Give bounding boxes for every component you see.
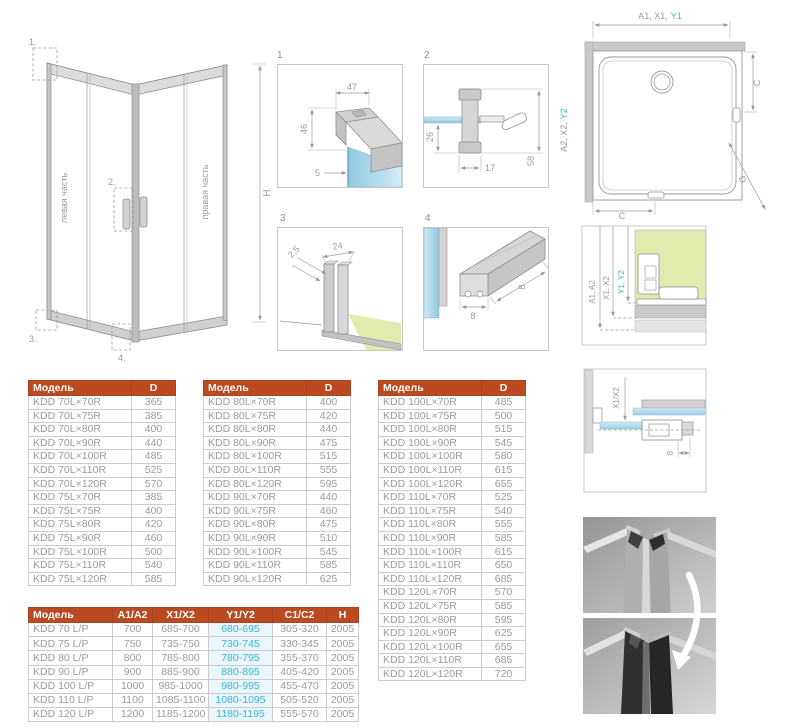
handle-right (140, 197, 147, 227)
side-dim-label: A2, X2,Y2 (560, 108, 569, 152)
table-row: KDD 100L×100R580 (379, 450, 526, 464)
table-row: KDD 100L×75R500 (379, 409, 526, 423)
detail-box-3: 24 2,5 (277, 227, 403, 351)
table-cell: 2005 (327, 679, 359, 693)
wall-profile-left (47, 63, 51, 320)
table-row: KDD 75L×110R540 (29, 559, 176, 573)
table-cell: 880-895 (209, 665, 273, 679)
model-dimension-table-3: МодельDKDD 100L×70R485KDD 100L×75R500KDD… (378, 380, 526, 681)
dim-46-label: 46 (299, 124, 309, 134)
table-cell: KDD 75L×110R (29, 559, 132, 573)
seal-photos (583, 517, 716, 719)
table-row: KDD 75L×90R460 (29, 531, 176, 545)
table-cell: 1085-1100 (153, 693, 209, 707)
interlock-knob (682, 422, 693, 435)
table-cell: 625 (307, 572, 351, 586)
table-cell: 615 (482, 545, 526, 559)
table-row: KDD 70L×75R385 (29, 409, 176, 423)
table-cell: 545 (307, 545, 351, 559)
table-cell: 400 (307, 396, 351, 410)
door-profile-arm (480, 116, 504, 122)
table-row: KDD 110L×100R615 (379, 545, 526, 559)
table-cell: KDD 100L×90R (379, 436, 482, 450)
table-row: KDD 120L×80R595 (379, 613, 526, 627)
table-cell: 555 (482, 518, 526, 532)
column-header: Модель (379, 381, 482, 396)
table-cell: KDD 110L×75R (379, 504, 482, 518)
table-cell: KDD 80L×75R (204, 409, 307, 423)
table-cell: 585 (482, 531, 526, 545)
table-row: KDD 110L×110R650 (379, 559, 526, 573)
profile-base-plate (637, 299, 706, 305)
table-row: KDD 80L×100R515 (204, 450, 351, 464)
dim-58-label: 58 (526, 156, 536, 166)
table-cell: 2005 (327, 623, 359, 637)
table-cell: KDD 90L×100R (204, 545, 307, 559)
table-header-row: МодельA1/A2X1/X2Y1/Y2C1/C2H (29, 608, 359, 623)
table-cell: KDD 70L×70R (29, 396, 132, 410)
table-row: KDD 120L×70R570 (379, 586, 526, 600)
table-row: KDD 100 L/P1000985-1000980-995455-470200… (29, 679, 359, 693)
ext-line (543, 262, 548, 268)
table-cell: 400 (132, 423, 176, 437)
guide-plate-left (324, 264, 334, 332)
table-row: KDD 110L×120R685 (379, 572, 526, 586)
table-cell: 680-695 (209, 623, 273, 637)
table-cell: KDD 75L×90R (29, 531, 132, 545)
table-row: KDD 110L×70R525 (379, 491, 526, 505)
table-row: KDD 80L×120R595 (204, 477, 351, 491)
table-cell: 625 (482, 627, 526, 641)
table-row: KDD 120L×120R720 (379, 667, 526, 681)
table-cell: 1185-1200 (153, 708, 209, 722)
door-stop-bottom (648, 192, 664, 198)
ext-line (490, 297, 496, 304)
table-header-row: МодельD (204, 381, 351, 396)
table-cell: 580 (482, 450, 526, 464)
column-header: D (132, 381, 176, 396)
wall-profile-arm (659, 287, 698, 299)
table-row: KDD 120 L/P12001185-12001180-1195555-570… (29, 708, 359, 722)
dim-26-label: 26 (425, 132, 435, 142)
column-header: D (482, 381, 526, 396)
table-cell: KDD 100L×75R (379, 409, 482, 423)
table-cell: 1200 (113, 708, 153, 722)
table-row: KDD 100L×120R655 (379, 477, 526, 491)
dim-line-24 (323, 252, 353, 257)
table-cell: KDD 70L×100R (29, 450, 132, 464)
table-cell: 780-795 (209, 651, 273, 665)
table-header-row: МодельD (29, 381, 176, 396)
table-cell: 365 (132, 396, 176, 410)
callout-label-1: 1. (29, 37, 37, 47)
table-cell: KDD 70L×80R (29, 423, 132, 437)
table-cell: KDD 90L×80R (204, 518, 307, 532)
glass-edge-profile (439, 228, 447, 306)
table-cell: KDD 100L×120R (379, 477, 482, 491)
table-cell: 400 (132, 504, 176, 518)
table-cell: 2005 (327, 693, 359, 707)
detail-3-number: 3 (280, 213, 286, 224)
table-cell: 685 (482, 572, 526, 586)
table-cell: KDD 120L×100R (379, 640, 482, 654)
table-cell: 700 (113, 623, 153, 637)
table-row: KDD 90L×100R545 (204, 545, 351, 559)
table-cell: 500 (132, 545, 176, 559)
table-cell: 385 (132, 491, 176, 505)
c-bottom-label: C (619, 211, 626, 220)
table-cell: KDD 75L×70R (29, 491, 132, 505)
table-cell: 525 (132, 463, 176, 477)
table-cell: KDD 100L×80R (379, 423, 482, 437)
table-cell: 570 (132, 477, 176, 491)
table-row: KDD 75L×75R400 (29, 504, 176, 518)
callout-label-3: 3. (29, 334, 37, 344)
table-row: KDD 120L×110R685 (379, 654, 526, 668)
column-header: H (327, 608, 359, 623)
dim-line-gap-2 (298, 258, 326, 274)
table-cell: KDD 75L×100R (29, 545, 132, 559)
dim-8-height-label: 8 (517, 284, 527, 289)
handle-cap-top (459, 89, 481, 100)
detail-box-1: 47 46 5 (277, 64, 403, 188)
table-cell: 330-345 (273, 637, 327, 651)
table-cell: 585 (307, 559, 351, 573)
model-dimension-table-1: МодельDKDD 70L×70R365KDD 70L×75R385KDD 7… (28, 380, 176, 586)
table-row: KDD 70L×100R485 (29, 450, 176, 464)
side-dim-gray: A2, X2, (560, 122, 569, 152)
table-cell: 2005 (327, 651, 359, 665)
table-cell: 540 (132, 559, 176, 573)
left-panel-label: левая часть (59, 173, 69, 224)
table-cell: KDD 70L×90R (29, 436, 132, 450)
table-cell: 440 (307, 491, 351, 505)
table-row: KDD 75L×120R585 (29, 572, 176, 586)
table-row: KDD 110L×90R585 (379, 531, 526, 545)
table-cell: 720 (482, 667, 526, 681)
table-cell: KDD 120L×70R (379, 586, 482, 600)
column-header: X1/X2 (153, 608, 209, 623)
table-row: KDD 110L×75R540 (379, 504, 526, 518)
table-cell: 500 (482, 409, 526, 423)
table-cell: 420 (132, 518, 176, 532)
top-dim-cyan: Y1 (671, 11, 682, 21)
table-cell: 2005 (327, 708, 359, 722)
table-cell: KDD 75L×120R (29, 572, 132, 586)
table-cell: KDD 80L×70R (204, 396, 307, 410)
table-row: KDD 80L×70R400 (204, 396, 351, 410)
height-dim-label: H (262, 189, 273, 196)
dim-47-label: 47 (347, 82, 357, 92)
column-header: Y1/Y2 (209, 608, 273, 623)
dim-line-gap-1 (292, 265, 320, 281)
floor-strip-dark (635, 305, 706, 318)
table-cell: 570 (482, 586, 526, 600)
table-cell: KDD 90L×90R (204, 531, 307, 545)
table-cell: 585 (132, 572, 176, 586)
dim-a-label: A1, A2 (588, 280, 597, 304)
table-cell: 750 (113, 637, 153, 651)
table-row: KDD 110 L/P11001085-11001080-1095505-520… (29, 693, 359, 707)
table-row: KDD 120L×75R585 (379, 599, 526, 613)
table-row: KDD 75L×100R500 (29, 545, 176, 559)
x1x2-label: X1/X2 (612, 387, 621, 409)
table-row: KDD 70L×70R365 (29, 396, 176, 410)
column-header: A1/A2 (113, 608, 153, 623)
table-cell: KDD 100L×110R (379, 463, 482, 477)
table-cell: 440 (132, 436, 176, 450)
table-cell: 460 (307, 504, 351, 518)
top-dim-gray: A1, X1, (638, 11, 668, 21)
side-dim-cyan: Y2 (560, 108, 569, 119)
dim-y-label: Y1, Y2 (617, 270, 626, 294)
table-cell: 615 (482, 463, 526, 477)
table-row: KDD 90L×80R475 (204, 518, 351, 532)
table-cell: 485 (482, 396, 526, 410)
table-cell: 510 (307, 531, 351, 545)
table-cell: 685 (482, 654, 526, 668)
glass-door-1 (633, 408, 705, 415)
table-cell: 515 (482, 423, 526, 437)
table-cell: 650 (482, 559, 526, 573)
wall-profile-slot-1 (645, 266, 656, 278)
table-cell: KDD 120L×90R (379, 627, 482, 641)
main-drawing: 1. 2. 3. 4. левая часть правая часть H (22, 30, 274, 375)
column-header: Модель (204, 381, 307, 396)
overlap-diagram: X1/X2 8 (578, 365, 711, 500)
column-header: C1/C2 (273, 608, 327, 623)
dim-x-label: X1, X2 (602, 275, 611, 300)
table-cell: 475 (307, 436, 351, 450)
seal-photos-svg (583, 517, 716, 714)
table-row: KDD 80L×90R475 (204, 436, 351, 450)
table-header-row: МодельD (379, 381, 526, 396)
table-row: KDD 100L×70R485 (379, 396, 526, 410)
wall-profile-right (223, 65, 227, 321)
table-cell: 485 (132, 450, 176, 464)
guide-plate-top-right (338, 262, 352, 265)
table-cell: KDD 120L×80R (379, 613, 482, 627)
table-row: KDD 100L×110R615 (379, 463, 526, 477)
table-row: KDD 90L×90R510 (204, 531, 351, 545)
table-cell: 540 (482, 504, 526, 518)
table-cell: KDD 90L×120R (204, 572, 307, 586)
column-header: Модель (29, 381, 132, 396)
table-cell: 440 (307, 423, 351, 437)
table-row: KDD 70L×80R400 (29, 423, 176, 437)
catalog-page: 1. 2. 3. 4. левая часть правая часть H 1 (0, 0, 791, 728)
table-row: KDD 100L×90R545 (379, 436, 526, 450)
dim-8-width-label: 8 (470, 311, 475, 321)
seal-channel-1 (465, 291, 471, 297)
table-row: KDD 110L×80R555 (379, 518, 526, 532)
table-cell: 595 (307, 477, 351, 491)
floor-line (280, 321, 322, 325)
table-cell: 1000 (113, 679, 153, 693)
detail-2-svg: 58 26 17 (424, 65, 548, 187)
table-cell: KDD 110L×110R (379, 559, 482, 573)
table-row: KDD 120L×100R655 (379, 640, 526, 654)
seal-gap (642, 641, 650, 714)
ext-line (322, 255, 325, 262)
rail-top-face (346, 117, 402, 149)
table-cell: 545 (482, 436, 526, 450)
table-cell: KDD 70L×110R (29, 463, 132, 477)
plan-view: A1, X1,Y1 A2, X2,Y2 C C D (560, 8, 791, 225)
table-row: KDD 70L×120R570 (29, 477, 176, 491)
table-cell: KDD 110 L/P (29, 693, 113, 707)
table-cell: KDD 75L×75R (29, 504, 132, 518)
seal-front-face (460, 274, 488, 296)
table-cell: 405-420 (273, 665, 327, 679)
door-stop-right (733, 108, 740, 122)
table-row: KDD 80L×75R420 (204, 409, 351, 423)
table-cell: KDD 90 L/P (29, 665, 113, 679)
detail-box-2: 58 26 17 (423, 64, 549, 188)
callout-label-4: 4. (118, 353, 126, 363)
table-cell: KDD 80L×100R (204, 450, 307, 464)
table-cell: 505-520 (273, 693, 327, 707)
table-cell: KDD 80 L/P (29, 651, 113, 665)
column-header: Модель (29, 608, 113, 623)
table-cell: 420 (307, 409, 351, 423)
table-cell: 900 (113, 665, 153, 679)
right-panel-label: правая часть (200, 164, 210, 219)
detail-4-svg: 8 8 (424, 228, 548, 350)
table-row: KDD 90 L/P900885-900880-895405-4202005 (29, 665, 359, 679)
table-cell: 800 (113, 651, 153, 665)
table-row: KDD 70L×110R525 (29, 463, 176, 477)
plan-view-svg: A1, X1,Y1 A2, X2,Y2 C C D (560, 8, 791, 220)
table-cell: 735-750 (153, 637, 209, 651)
detail-box-4: 8 8 (423, 227, 549, 351)
table-cell: 2005 (327, 665, 359, 679)
detail-2-number: 2 (424, 50, 430, 61)
table-cell: KDD 120L×120R (379, 667, 482, 681)
table-cell: 385 (132, 409, 176, 423)
table-cell: 1080-1095 (209, 693, 273, 707)
table-row: KDD 75 L/P750735-750730-745330-3452005 (29, 637, 359, 651)
table-cell: KDD 70L×120R (29, 477, 132, 491)
detail-1-svg: 47 46 5 (278, 65, 402, 187)
guide-plate-right (338, 265, 348, 334)
callout-label-2: 2. (108, 177, 116, 187)
dim-17-label: 17 (485, 163, 495, 173)
table-cell: 555 (307, 463, 351, 477)
c-right-label: C (752, 79, 762, 86)
table-cell: KDD 90L×75R (204, 504, 307, 518)
door-profile-bar (642, 400, 705, 408)
table-cell: 685-700 (153, 623, 209, 637)
table-cell: KDD 100L×70R (379, 396, 482, 410)
table-cell: KDD 80L×80R (204, 423, 307, 437)
table-cell: KDD 80L×120R (204, 477, 307, 491)
table-cell: 475 (307, 518, 351, 532)
table-cell: KDD 100 L/P (29, 679, 113, 693)
table-cell: 305-320 (273, 623, 327, 637)
wall-profile-slot-2 (645, 280, 656, 290)
top-dim-label: A1, X1,Y1 (638, 11, 682, 21)
table-cell: 355-370 (273, 651, 327, 665)
table-cell: 655 (482, 640, 526, 654)
table-row: KDD 70L×90R440 (29, 436, 176, 450)
table-cell: 595 (482, 613, 526, 627)
wall-top (585, 42, 745, 51)
table-cell: KDD 75L×80R (29, 518, 132, 532)
dim-gap-label: 2,5 (286, 244, 302, 260)
floor-strip-light (635, 320, 706, 332)
table-cell: KDD 90L×110R (204, 559, 307, 573)
wall-bracket (593, 408, 602, 423)
table-cell: 460 (132, 531, 176, 545)
wall-section-svg: A1, A2 X1, X2 Y1, Y2 (575, 220, 710, 350)
table-cell: KDD 110L×100R (379, 545, 482, 559)
table-row: KDD 90L×120R625 (204, 572, 351, 586)
table-row: KDD 70 L/P700685-700680-695305-3202005 (29, 623, 359, 637)
table-cell: KDD 70L×75R (29, 409, 132, 423)
table-cell: KDD 120L×75R (379, 599, 482, 613)
table-cell: KDD 100L×100R (379, 450, 482, 464)
table-row: KDD 90L×75R460 (204, 504, 351, 518)
wall-left (585, 42, 593, 202)
table-row: KDD 75L×80R420 (29, 518, 176, 532)
seal-channel-2 (477, 291, 483, 297)
model-sizes-table: МодельA1/A2X1/X2Y1/Y2C1/C2HKDD 70 L/P700… (28, 607, 359, 722)
table-cell: KDD 80L×110R (204, 463, 307, 477)
handle-left (123, 199, 130, 229)
seal-gap (642, 538, 650, 613)
main-drawing-svg: 1. 2. 3. 4. левая часть правая часть H (22, 30, 274, 370)
wall-section-diagram: A1, A2 X1, X2 Y1, Y2 (575, 220, 710, 355)
table-cell: 1180-1195 (209, 708, 273, 722)
right-door-panel (135, 65, 227, 341)
table-cell: 515 (307, 450, 351, 464)
table-cell: KDD 120L×110R (379, 654, 482, 668)
table-row: KDD 80L×110R555 (204, 463, 351, 477)
detail-1-number: 1 (277, 50, 283, 61)
seal-column-right (649, 635, 673, 714)
table-cell: 985-1000 (153, 679, 209, 693)
dim-5-label: 5 (315, 168, 320, 178)
table-row: KDD 80 L/P800785-800780-795355-3702005 (29, 651, 359, 665)
table-cell: KDD 110L×120R (379, 572, 482, 586)
table-cell: 655 (482, 477, 526, 491)
table-cell: KDD 110L×90R (379, 531, 482, 545)
table-cell: 785-800 (153, 651, 209, 665)
glass-panel (424, 228, 439, 318)
dim-24-label: 24 (332, 240, 343, 251)
table-cell: 585 (482, 599, 526, 613)
table-cell: KDD 110L×80R (379, 518, 482, 532)
handle-cap-bottom (459, 142, 481, 153)
table-row: KDD 90L×70R440 (204, 491, 351, 505)
table-cell: 730-745 (209, 637, 273, 651)
table-cell: KDD 80L×90R (204, 436, 307, 450)
table-row: KDD 120L×90R625 (379, 627, 526, 641)
table-cell: KDD 90L×70R (204, 491, 307, 505)
table-cell: 555-570 (273, 708, 327, 722)
table-cell: 980-995 (209, 679, 273, 693)
table-cell: 455-470 (273, 679, 327, 693)
wall-strip (585, 370, 593, 453)
column-header: D (307, 381, 351, 396)
table-cell: KDD 120 L/P (29, 708, 113, 722)
table-row: KDD 100L×80R515 (379, 423, 526, 437)
table-row: KDD 80L×80R440 (204, 423, 351, 437)
table-cell: 525 (482, 491, 526, 505)
table-cell: 1100 (113, 693, 153, 707)
detail-3-svg: 24 2,5 (278, 228, 402, 350)
